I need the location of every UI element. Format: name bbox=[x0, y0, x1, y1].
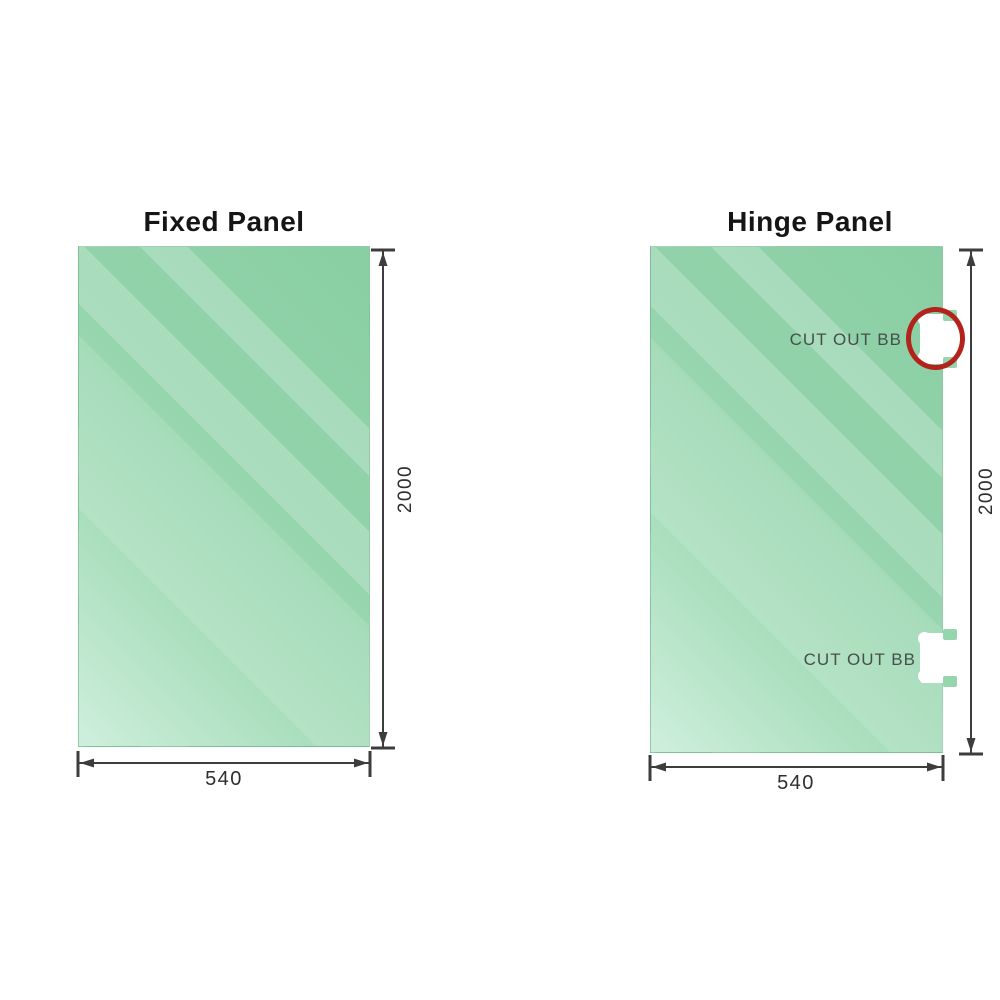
arrow-down-icon bbox=[967, 738, 976, 752]
hinge-width-label: 540 bbox=[736, 772, 856, 795]
arrow-down-icon bbox=[379, 732, 388, 746]
hinge-panel-title: Hinge Panel bbox=[663, 206, 957, 238]
fixed-width-label: 540 bbox=[164, 768, 284, 791]
hinge-height-label: 2000 bbox=[959, 463, 1000, 519]
hinge-cutout-bottom bbox=[916, 629, 960, 692]
arrow-up-icon bbox=[379, 252, 388, 266]
fixed-panel-glass bbox=[78, 246, 370, 747]
fixed-panel-title: Fixed Panel bbox=[78, 206, 370, 238]
cutout-top-label: CUT OUT BB bbox=[742, 330, 902, 350]
arrow-up-icon bbox=[967, 252, 976, 266]
fixed-height-label: 2000 bbox=[378, 461, 434, 517]
arrow-left-icon bbox=[80, 759, 94, 768]
arrow-left-icon bbox=[652, 763, 666, 772]
cutout-relief-top bbox=[918, 632, 931, 645]
arrow-right-icon bbox=[927, 763, 941, 772]
arrow-right-icon bbox=[354, 759, 368, 768]
diagram-canvas: Fixed Panel 2000 540 Hinge Panel bbox=[0, 0, 1000, 1000]
edge-tab-bottom bbox=[943, 676, 957, 687]
cutout-bottom-label: CUT OUT BB bbox=[756, 650, 916, 670]
edge-tab-top bbox=[943, 629, 957, 640]
cutout-relief-bottom bbox=[918, 670, 931, 683]
hinge-panel-glass bbox=[650, 246, 943, 753]
